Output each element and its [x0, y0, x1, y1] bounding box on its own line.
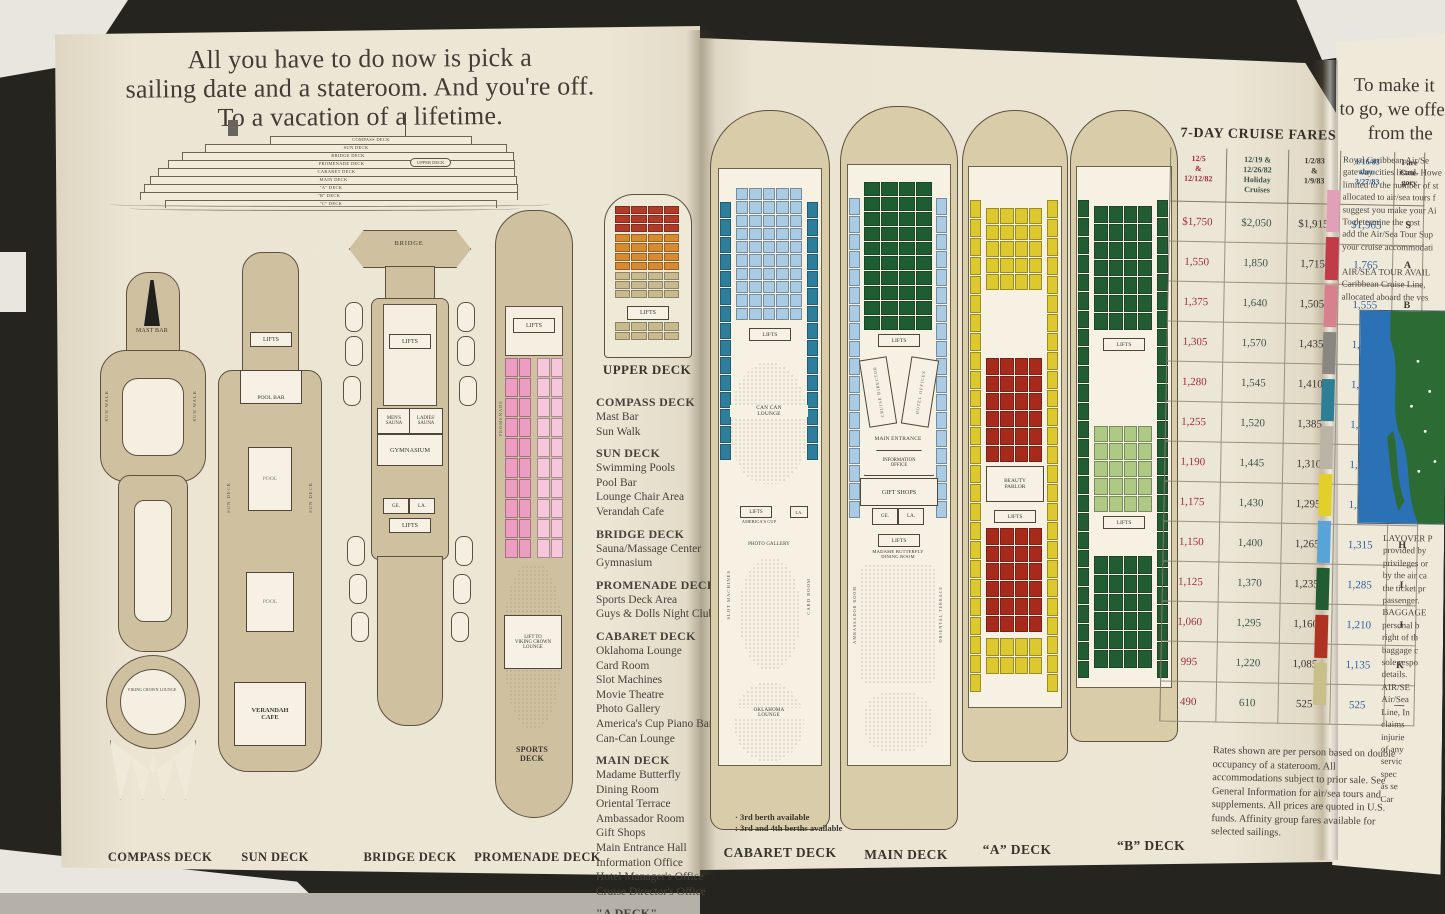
fare-cell: 1,255 [1166, 402, 1223, 443]
cabin-cell [864, 271, 880, 285]
cabin-cell [916, 227, 932, 241]
fare-cell: 1,305 [1167, 322, 1224, 363]
dining-room-area [860, 564, 936, 684]
cabin-cell [1047, 257, 1058, 275]
cabin-cell [1047, 541, 1058, 559]
cabin-cell [736, 188, 748, 200]
cabin-cell [1094, 224, 1108, 241]
cabin-cell [1029, 241, 1042, 257]
cabin-cell [537, 519, 550, 538]
cabin-cell [1157, 218, 1168, 235]
cabin-cell [1109, 631, 1123, 649]
ship-deck-line: CABARET DECK [158, 168, 515, 176]
cabin-cell [505, 458, 518, 477]
fare-cell: 1,295 [1218, 603, 1281, 644]
cabin-cell [664, 322, 679, 331]
cabin-cell [551, 499, 564, 518]
cabin-cell [1078, 587, 1089, 604]
cabin-cell [807, 444, 818, 460]
cabin-cell [1157, 237, 1168, 254]
cabin-cell [615, 290, 630, 298]
cabin-cell [970, 484, 981, 502]
ship-deck-line: "A" DECK [144, 184, 518, 192]
table-edge-strip [0, 893, 700, 914]
cabin-cell [790, 294, 802, 306]
cabin-cell [1094, 206, 1108, 223]
cabin-cell [970, 371, 981, 389]
cabin-cell [1109, 224, 1123, 241]
cabin-cell [936, 394, 947, 411]
cabin-cell [551, 378, 564, 397]
cabin-cell [916, 182, 932, 196]
cabin-cell [849, 305, 860, 322]
cabin-cell [1015, 376, 1028, 393]
promenade-side-label: PROMENADE [498, 400, 503, 436]
fare-cell: 1,400 [1219, 523, 1282, 564]
cabin-cell [849, 198, 860, 215]
cabin-cell [1047, 560, 1058, 578]
cabin-cell [749, 215, 761, 227]
main-cabins-outer-right [936, 198, 947, 518]
cabin-cell [631, 262, 646, 270]
cabin-cell [899, 256, 915, 270]
cabin-cell [970, 465, 981, 483]
cabin-cell [986, 258, 999, 274]
cabin-cell [720, 237, 731, 253]
cabin-cell [505, 398, 518, 417]
cabin-cell [1000, 274, 1013, 290]
cabin-cell [986, 358, 999, 375]
cabin-cell [970, 655, 981, 673]
venue-item: Cruise Director's Office [596, 885, 761, 900]
cabin-cell [790, 201, 802, 213]
cabin-cell [664, 290, 679, 298]
cabin-cell [970, 390, 981, 408]
cabin-cell [849, 376, 860, 393]
cabin-cell [970, 503, 981, 521]
cabin-cell [736, 241, 748, 253]
ambassador-room-label: AMBASSADOR ROOM [852, 586, 857, 644]
cabin-cell [1109, 295, 1123, 312]
fare-cell: 610 [1216, 683, 1279, 724]
cabin-cell [881, 301, 897, 315]
ship-funnel [228, 120, 238, 136]
cabin-cell [1138, 443, 1152, 459]
cabin-cell [664, 332, 679, 341]
cabin-cell [1078, 292, 1089, 309]
berth-footnotes: · 3rd berth available : 3rd and 4th bert… [735, 812, 842, 835]
main-ge-box: GE. [872, 508, 898, 525]
ship-deck-line: "B" DECK [140, 192, 518, 200]
cabin-cell [664, 234, 679, 242]
cabin-cell [899, 242, 915, 256]
cabin-cell [790, 228, 802, 240]
panel-paragraph-1: Royal Caribbean Air/Se gateway cities li… [1342, 154, 1445, 255]
fare-category-tab [1314, 615, 1328, 658]
cabin-cell [1000, 616, 1013, 633]
cabin-cell [1029, 546, 1042, 563]
air-sea-panel: To make it to go, we offe from the Royal… [1328, 33, 1445, 874]
cabin-cell [1124, 443, 1138, 459]
cabin-cell [936, 198, 947, 215]
verandah-cafe-box: VERANDAH CAFE [234, 682, 306, 746]
cabin-cell [864, 256, 880, 270]
cabin-cell [1078, 532, 1089, 549]
cabin-cell [790, 188, 802, 200]
cabin-cell [551, 519, 564, 538]
fare-cell: 1,175 [1164, 481, 1221, 522]
fare-cell: 1,520 [1222, 403, 1285, 444]
oklahoma-lounge-area [734, 682, 804, 762]
cabin-cell [1078, 384, 1089, 401]
cabin-cell [763, 268, 775, 280]
cabin-cell [1000, 393, 1013, 410]
cabin-cell [1047, 674, 1058, 692]
cabin-cell [1094, 426, 1108, 442]
cabin-cell [1094, 556, 1108, 574]
cabin-cell [970, 446, 981, 464]
cabin-cell [1094, 612, 1108, 630]
cabin-cell [763, 188, 775, 200]
cabin-cell [807, 340, 818, 356]
cabin-cell [736, 215, 748, 227]
cabin-cell [849, 216, 860, 233]
cabin-cell [763, 281, 775, 293]
cabin-cell [1000, 598, 1013, 615]
cabin-cell [763, 241, 775, 253]
ship-deck-stack: COMPASS DECKSUN DECKBRIDGE DECKPROMENADE… [110, 136, 560, 208]
cabin-cell [551, 398, 564, 417]
cabin-cell [849, 234, 860, 251]
a-cabins-outer-right [1047, 200, 1058, 692]
cabin-cell [899, 182, 915, 196]
cabin-cell [1094, 631, 1108, 649]
madame-butterfly-label: MADAME BUTTERFLY DINING ROOM [844, 549, 952, 559]
cabin-cell [615, 272, 630, 280]
viking-crown-label: VIKING CROWN LOUNGE [120, 688, 184, 692]
cabin-cell [1029, 258, 1042, 274]
cabin-cell [720, 202, 731, 218]
cabin-cell [1029, 563, 1042, 580]
cabin-cell [790, 254, 802, 266]
cabin-cell [790, 268, 802, 280]
cabin-cell [1047, 617, 1058, 635]
cabin-cell [864, 212, 880, 226]
cabin-cell [749, 268, 761, 280]
cabin-cell [1015, 225, 1028, 241]
cabin-cell [1109, 242, 1123, 259]
cabin-cell [864, 316, 880, 330]
cabin-cell [849, 341, 860, 358]
cabin-cell [1047, 371, 1058, 389]
cabin-cell [849, 287, 860, 304]
main-entrance-label: MAIN ENTRANCE [848, 436, 948, 442]
upper-deck-caption: UPPER DECK [594, 362, 700, 378]
fare-cell: 1,370 [1219, 563, 1282, 604]
cabin-cell [1015, 638, 1028, 656]
cabin-cell [936, 216, 947, 233]
cabin-cell [1047, 276, 1058, 294]
cabin-cell [1124, 295, 1138, 312]
fare-category-tab [1316, 568, 1330, 611]
cabin-cell [1029, 393, 1042, 410]
cabin-cell [1124, 612, 1138, 630]
cabin-cell [881, 316, 897, 330]
oklahoma-lounge-label: OKLAHOMA LOUNGE [734, 708, 804, 718]
cabin-cell [1000, 563, 1013, 580]
ship-profile-illustration: COMPASS DECKSUN DECKBRIDGE DECKPROMENADE… [110, 118, 560, 208]
la-box: LA. [409, 498, 435, 514]
cabin-cell [1015, 258, 1028, 274]
cabin-cell [1047, 219, 1058, 237]
fare-category-tab [1318, 473, 1332, 516]
slot-machines-label: SLOT MACHINES [726, 570, 731, 620]
cabin-cell [916, 271, 932, 285]
cabin-cell [551, 438, 564, 457]
cabin-cell [763, 201, 775, 213]
cabin-cell [1138, 650, 1152, 668]
cabin-cell [736, 308, 748, 320]
cabin-cell [1047, 579, 1058, 597]
cabin-cell [1029, 638, 1042, 656]
cabin-cell [864, 197, 880, 211]
cabin-cell [864, 227, 880, 241]
a-cabins-red-low [986, 528, 1042, 632]
cabin-cell [970, 674, 981, 692]
fare-cell: $1,750 [1170, 202, 1227, 243]
fare-cell: 995 [1161, 641, 1218, 682]
cabin-cell [720, 306, 731, 322]
cabin-cell [631, 281, 646, 289]
cabin-cell [807, 409, 818, 425]
cabin-cell [807, 357, 818, 373]
cabin-cell [519, 398, 532, 417]
cabin-cell [1029, 274, 1042, 290]
cabin-cell [615, 253, 630, 261]
b-lifts2-box: LIFTS [1103, 516, 1145, 529]
mast-bar-label: MAST BAR [92, 328, 212, 334]
cabin-cell [776, 215, 788, 227]
cabin-cell [1015, 563, 1028, 580]
cabin-cell [1124, 260, 1138, 277]
cabin-cell [1078, 513, 1089, 530]
fare-cell: 490 [1160, 681, 1217, 722]
cabin-cell [749, 308, 761, 320]
cabin-cell [790, 241, 802, 253]
cabin-cell [1138, 313, 1152, 330]
cabin-cell [970, 314, 981, 332]
cabin-cell [899, 301, 915, 315]
cabin-cell [1015, 581, 1028, 598]
cabin-cell [749, 281, 761, 293]
cabin-cell [1029, 411, 1042, 428]
cabin-cell [1047, 446, 1058, 464]
cabin-cell [1047, 636, 1058, 654]
viking-lift-box: LIFT TO VIKING CROWN LOUNGE [504, 615, 562, 669]
cabin-cell [615, 332, 630, 341]
brochure-photo: All you have to do now is pick a sailing… [0, 0, 1445, 914]
cabin-cell [849, 501, 860, 518]
cabin-cell [916, 242, 932, 256]
cabin-cell [1078, 458, 1089, 475]
cabin-cell [807, 426, 818, 442]
cabin-cell [1138, 242, 1152, 259]
cabin-cell [1138, 277, 1152, 294]
cabin-cell [1000, 638, 1013, 656]
cabin-cell [1029, 657, 1042, 675]
cabin-cell [1138, 594, 1152, 612]
cabin-cell [648, 224, 663, 232]
cabin-cell [881, 242, 897, 256]
cabin-cell [1078, 642, 1089, 659]
cabaret-cabins-inner [736, 188, 802, 320]
a-cabins-inner-top [986, 208, 1042, 290]
cabin-cell [505, 519, 518, 538]
cabin-cell [615, 224, 630, 232]
cabin-cell [664, 262, 679, 270]
hotel-offices-label: HOTEL OFFICES [914, 370, 926, 415]
cabin-cell [899, 212, 915, 226]
cabin-cell [615, 215, 630, 223]
cabin-cell [537, 458, 550, 477]
upper-cabins-orange [615, 234, 679, 270]
cabin-cell [1109, 575, 1123, 593]
cabin-cell [1094, 260, 1108, 277]
cabin-cell [849, 251, 860, 268]
cabin-cell [631, 224, 646, 232]
cabin-cell [505, 499, 518, 518]
cabin-cell [763, 308, 775, 320]
prom-cabins-left [505, 358, 531, 558]
cabin-cell [970, 541, 981, 559]
cabin-cell [1138, 478, 1152, 494]
cabin-cell [1015, 358, 1028, 375]
cabin-cell [505, 358, 518, 377]
cabin-cell [864, 301, 880, 315]
cabin-cell [1078, 255, 1089, 272]
cabin-cell [970, 522, 981, 540]
cabin-cell [970, 427, 981, 445]
cabin-cell [648, 253, 663, 261]
cabin-cell [1109, 496, 1123, 512]
fare-category-tab [1313, 662, 1327, 705]
cabin-cell [631, 290, 646, 298]
upper-deck-tag: UPPER DECK [410, 158, 451, 167]
fare-cell: 1,445 [1221, 443, 1284, 484]
cabin-cell [1029, 376, 1042, 393]
cabin-cell [1124, 206, 1138, 223]
cabin-cell [970, 238, 981, 256]
cabin-cell [551, 418, 564, 437]
cabin-cell [1124, 496, 1138, 512]
fare-cell: 1,375 [1168, 282, 1225, 323]
cabin-cell [720, 254, 731, 270]
sports-deck-label: SPORTS DECK [475, 745, 589, 763]
cabin-cell [986, 208, 999, 224]
cabin-cell [899, 227, 915, 241]
cabin-cell [970, 295, 981, 313]
cabin-cell [1109, 277, 1123, 294]
cabin-cell [749, 294, 761, 306]
cabin-cell [664, 253, 679, 261]
cabin-cell [537, 358, 550, 377]
bridge-lifts-box: LIFTS [389, 334, 431, 349]
oriental-terrace-label: ORIENTAL TERRACE [938, 586, 943, 643]
cabin-cell [519, 458, 532, 477]
cabin-cell [1124, 594, 1138, 612]
compass-deck-plan: MAST BAR SUN WALK SUN WALK VIKING CROWN … [92, 270, 212, 805]
cabin-cell [631, 322, 646, 331]
panel-paragraph-2: AIR/SEA TOUR AVAIL Caribbean Cruise Line… [1342, 266, 1445, 305]
cabin-cell [519, 358, 532, 377]
cabin-cell [631, 332, 646, 341]
ambassador-room-area [864, 692, 932, 752]
cabin-cell [631, 215, 646, 223]
sun-walk-left-label: SUN WALK [104, 390, 109, 422]
cabin-cell [1047, 333, 1058, 351]
cabin-cell [1015, 241, 1028, 257]
cabin-cell [936, 234, 947, 251]
movie-theatre-area [740, 558, 800, 670]
cabin-cell [1094, 461, 1108, 477]
cabin-cell [1124, 224, 1138, 241]
cabin-cell [936, 251, 947, 268]
cancan-lounge-label: CAN CAN LOUNGE [730, 405, 808, 417]
cabin-cell [736, 294, 748, 306]
cabin-cell [970, 352, 981, 370]
cabin-cell [864, 286, 880, 300]
cabin-cell [1124, 650, 1138, 668]
cabin-cell [505, 479, 518, 498]
cabin-cell [720, 271, 731, 287]
venue-item: Hotel Manager's Office [596, 870, 761, 885]
cabin-cell [1078, 329, 1089, 346]
cabin-cell [551, 358, 564, 377]
cabin-cell [849, 394, 860, 411]
cabin-cell [970, 408, 981, 426]
cabin-cell [807, 202, 818, 218]
cabin-cell [720, 357, 731, 373]
cabin-cell [1094, 295, 1108, 312]
cabin-cell [1138, 556, 1152, 574]
cabin-cell [1078, 624, 1089, 641]
cabin-cell [664, 224, 679, 232]
bridge-lifts2-box: LIFTS [389, 518, 431, 533]
cabin-cell [986, 428, 999, 445]
cabin-cell [1078, 605, 1089, 622]
cabin-cell [776, 254, 788, 266]
cabin-cell [936, 448, 947, 465]
pool-1: POOL [248, 447, 292, 511]
ship-deck-line: BRIDGE DECK [182, 152, 514, 160]
cabaret-deck-plan: LIFTS CAN CAN LOUNGE LIFTS LA. AMERICA'S… [704, 110, 834, 832]
cabin-cell [970, 276, 981, 294]
cabin-cell [1047, 484, 1058, 502]
cabin-cell [881, 256, 897, 270]
cabin-cell [519, 519, 532, 538]
ladies-sauna-box: LADIES' SAUNA [409, 408, 443, 434]
cabin-cell [936, 341, 947, 358]
cabaret-lifts2-box: LIFTS [740, 506, 772, 518]
cabin-cell [1138, 461, 1152, 477]
cabin-cell [916, 212, 932, 226]
fare-cell: 1,150 [1163, 521, 1220, 562]
cabin-cell [1157, 274, 1168, 291]
cabin-cell [1015, 393, 1028, 410]
cabin-cell [1000, 376, 1013, 393]
cabin-cell [1109, 461, 1123, 477]
cabin-cell [749, 188, 761, 200]
